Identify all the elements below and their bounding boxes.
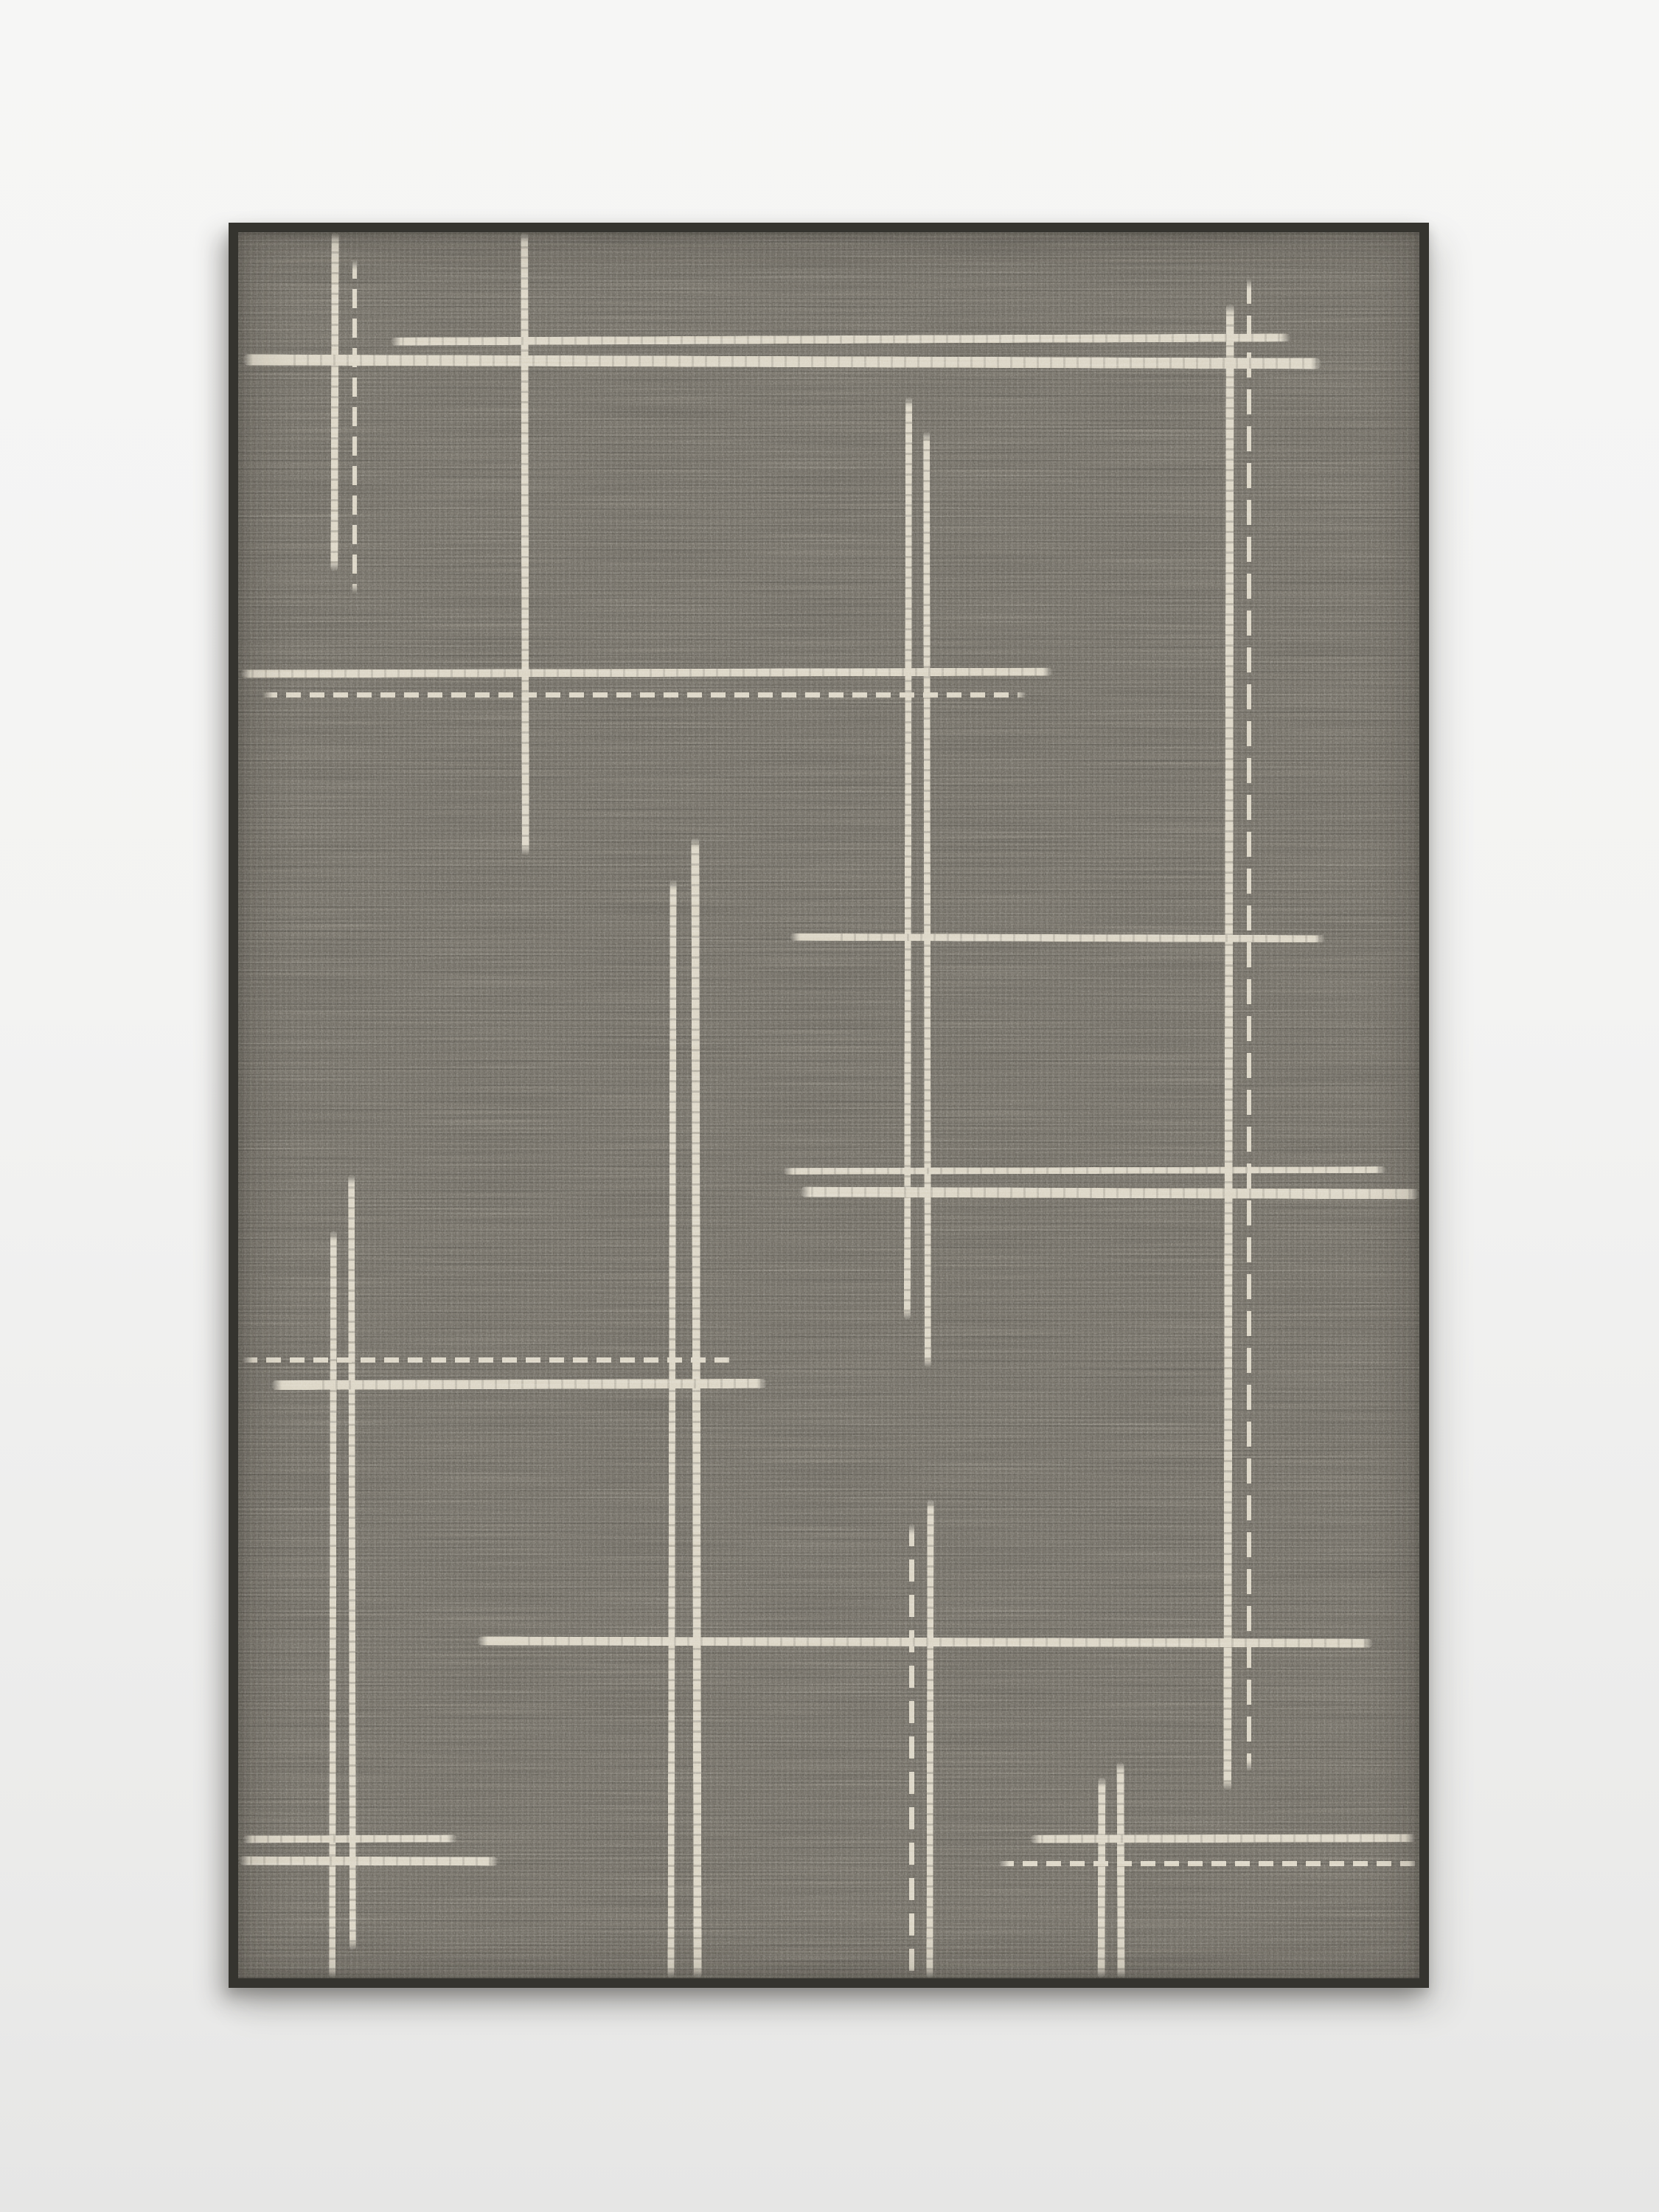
rug-pattern-line-h-bottom-right-dashed [999,1861,1419,1866]
rug-pattern-line-v-bottom-right-pair-a [1098,1777,1106,1978]
rug-pattern-lines [238,232,1419,1978]
rug-pattern-line-v-bottom-left-pair-b [348,1175,356,1950]
rug-pattern-line-v-top-left-solid [330,232,338,571]
rug-pattern-line-v-lower-center-solid [926,1499,933,1978]
rug-pattern-line-v-lower-center-dashed [909,1524,914,1978]
rug-pattern-line-h-left-mid-solid [271,1379,767,1390]
rug-pattern-line-h-top-band-lower [243,354,1321,369]
rug-pattern-line-v-bottom-left-pair-a [329,1231,337,1978]
rug-pattern-line-h-bottom-left-short-a [243,1834,457,1843]
rug [229,223,1429,1988]
rug-pattern-line-h-center-right [790,933,1325,943]
rug-pattern-line-h-left-mid-dashed [243,1357,737,1363]
rug-pattern-line-blob [787,930,835,944]
rug-pattern-line-v-mid-right-pair-b [923,431,931,1368]
rug-field [238,232,1419,1978]
rug-pattern-line-v-center-pair-a [667,880,676,1978]
rug-pattern-line-h-lower-long [477,1636,1373,1647]
rug-pattern-line-blob [240,349,288,370]
rug-pattern-line-v-bottom-right-pair-b [1116,1761,1124,1978]
rug-pattern-line-v-center-pair-b [691,838,701,1978]
rug-pattern-line-v-mid-right-pair-a [904,397,912,1320]
page: { "meta": { "type": "product-photo", "al… [0,0,1659,2212]
product-photo-scene [0,0,1659,2212]
rug-pattern-line-v-right-long-dashed [1247,279,1251,1771]
rug-pattern-line-h-upper-mid-solid [240,668,1053,678]
rug-pattern-line-blob [269,1376,316,1394]
rug-pattern-line-h-bottom-right-solid [1030,1834,1416,1843]
rug-pattern-line-v-right-long-solid [1223,304,1234,1790]
rug-pattern-line-h-upper-mid-dashed [262,692,1026,698]
rug-pattern-line-h-right-band-lower [800,1187,1419,1200]
rug-pattern-line-blob [475,1632,522,1649]
rug-pattern-line-v-top-left-dashed [352,260,357,594]
rug-pattern-line-h-bottom-left-short-b [239,1857,498,1866]
rug-pattern-line-h-right-band-upper [783,1166,1386,1175]
rug-pattern-line-v-upper-center-left [521,232,529,855]
